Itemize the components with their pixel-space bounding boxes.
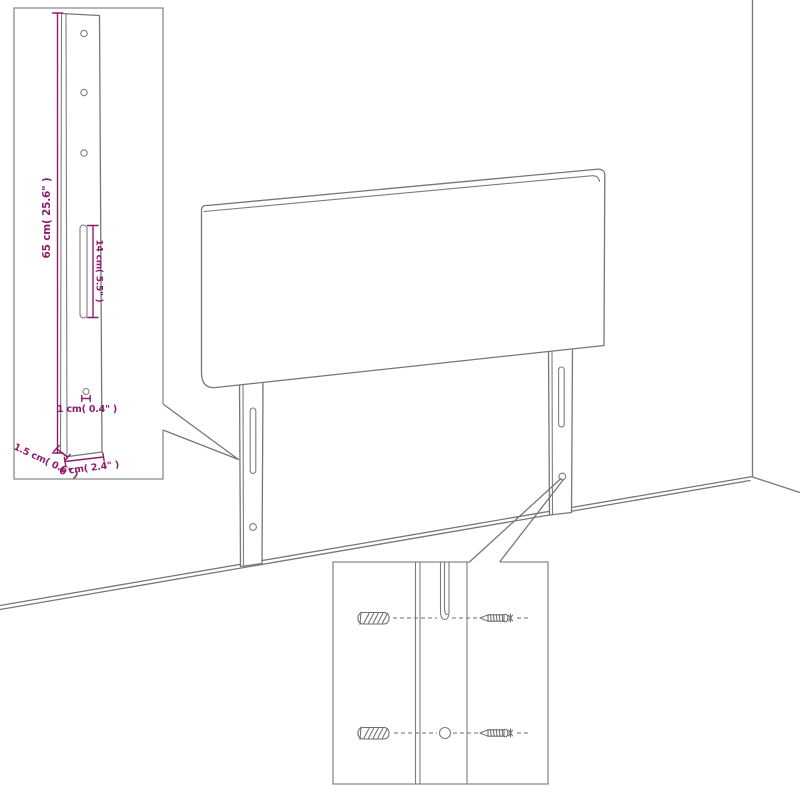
hardware-inset-leader-right <box>500 480 564 562</box>
headboard-outline <box>202 169 605 387</box>
left-mounting-bracket <box>240 381 264 567</box>
bracket-detail-inset: 65 cm( 25.6" ) 14 cm( 5.5" ) 1 cm( 0.4" … <box>12 8 163 481</box>
assembly-diagram: 65 cm( 25.6" ) 14 cm( 5.5" ) 1 cm( 0.4" … <box>0 0 800 800</box>
height-dimension-label: 65 cm( 25.6" ) <box>41 178 53 259</box>
bracket-inset-leader-top <box>163 404 239 460</box>
floor-corner-right-line <box>753 477 800 493</box>
hole-dimension-label: 1 cm( 0.4" ) <box>57 404 117 415</box>
hardware-detail-inset <box>333 562 548 784</box>
slot-dimension-label: 14 cm( 5.5" ) <box>94 240 104 303</box>
right-mounting-bracket <box>549 350 573 516</box>
diagram-canvas: 65 cm( 25.6" ) 14 cm( 5.5" ) 1 cm( 0.4" … <box>0 0 800 800</box>
hardware-inset-leader-left <box>470 479 561 562</box>
callout-leader-lines <box>163 404 564 562</box>
headboard-panel <box>202 169 605 387</box>
bracket-inset-leader-bottom <box>163 430 239 460</box>
